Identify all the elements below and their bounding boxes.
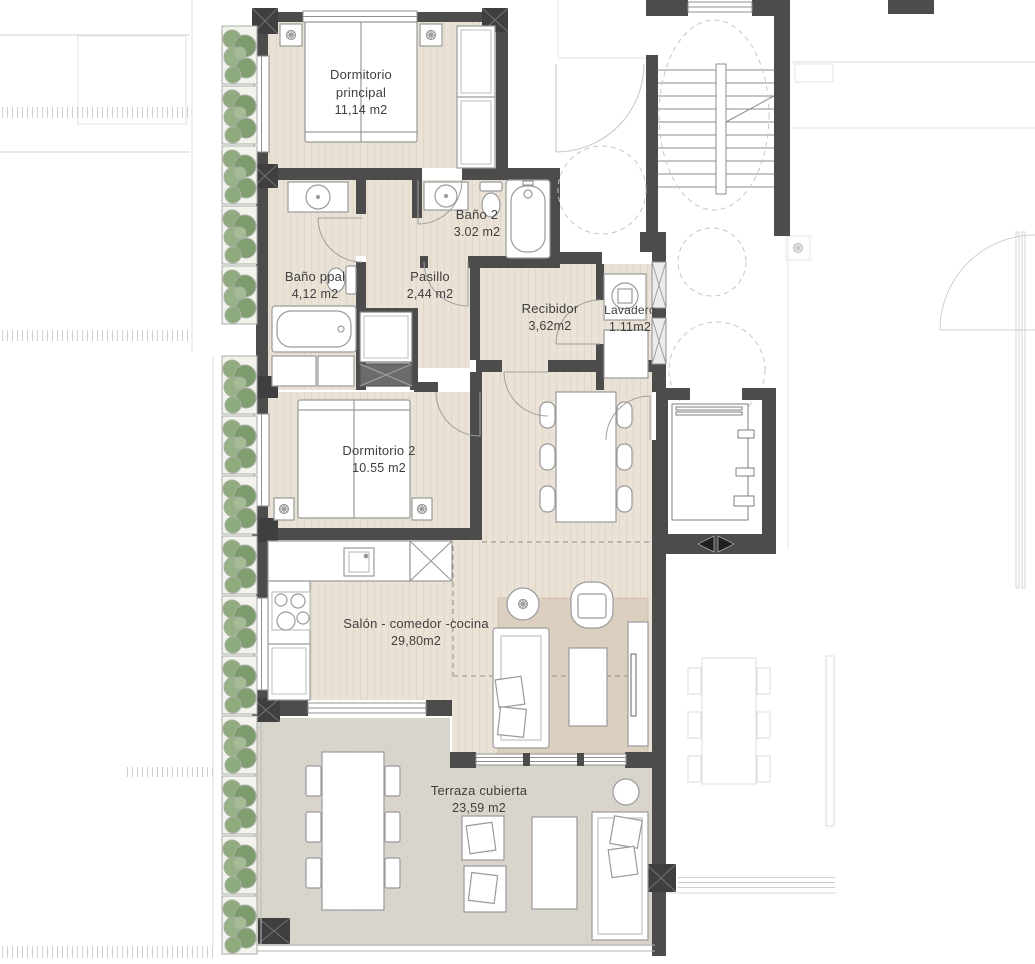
planter-box: [222, 776, 257, 834]
room-label-recibidor: Recibidor 3,62m2: [522, 300, 579, 335]
terrace-chair: [385, 858, 400, 888]
floor-plan: Dormitorio principal 11,14 m2 Baño 2 3.0…: [0, 0, 1035, 964]
dining-table: [556, 392, 616, 522]
closet: [360, 312, 412, 362]
ac-unit: [360, 364, 412, 386]
room-area: 3.02 m2: [454, 224, 501, 241]
dining-chair: [540, 444, 555, 470]
dining-chair: [540, 486, 555, 512]
room-name: Lavadero: [604, 302, 656, 319]
planter-box: [222, 596, 257, 654]
planter-box: [222, 26, 257, 84]
room-name: Recibidor: [522, 300, 579, 318]
planter-box: [222, 416, 257, 474]
planter-box: [222, 146, 257, 204]
room-area: 4,12 m2: [285, 286, 345, 303]
kitchen-counter: [268, 541, 410, 581]
planter-box: [222, 536, 257, 594]
planters: [222, 26, 257, 954]
planter-box: [222, 656, 257, 714]
planter-box: [222, 896, 257, 954]
room-name: Pasillo: [407, 268, 454, 286]
room-area: 2,44 m2: [407, 286, 454, 303]
room-label-bano-2: Baño 2 3.02 m2: [454, 206, 501, 241]
sofa: [493, 628, 549, 748]
dining-chair: [617, 486, 632, 512]
window: [308, 703, 426, 713]
room-name: Terraza cubierta: [431, 782, 527, 800]
decor-flower-icon: [794, 244, 803, 253]
wardrobe: [457, 26, 495, 168]
neighbor-dining-table: [688, 658, 770, 784]
terrace-dining-table: [322, 752, 384, 910]
floor-plan-canvas: [0, 0, 1035, 964]
bathtub: [272, 306, 356, 352]
terrace-chair: [306, 858, 321, 888]
refrigerator: [410, 541, 452, 581]
room-area: 23,59 m2: [431, 800, 527, 817]
tv-sideboard: [628, 622, 648, 746]
room-area: 1.11m2: [604, 319, 656, 336]
room-label-terraza-cubierta: Terraza cubierta 23,59 m2: [431, 782, 527, 817]
room-label-dormitorio-principal: Dormitorio principal 11,14 m2: [315, 66, 407, 119]
planter-box: [222, 86, 257, 144]
planter-box: [222, 716, 257, 774]
window: [303, 11, 417, 22]
room-area: 29,80m2: [343, 633, 489, 650]
planter-box: [222, 266, 257, 324]
planter-box: [222, 356, 257, 414]
terrace-coffee-table: [532, 817, 577, 909]
room-area: 3,62m2: [522, 318, 579, 335]
room-label-lavadero: Lavadero 1.11m2: [604, 302, 656, 336]
cooktop: [272, 592, 310, 630]
room-area: 11,14 m2: [315, 102, 407, 119]
room-name: Baño 2: [454, 206, 501, 224]
terrace-armchair: [464, 866, 506, 912]
terrace-chair: [385, 812, 400, 842]
terrace-chair: [385, 766, 400, 796]
coffee-table: [569, 648, 607, 726]
dining-chair: [540, 402, 555, 428]
elevator: [656, 388, 776, 554]
planter-box: [222, 836, 257, 894]
terrace-chair: [306, 812, 321, 842]
staircase: [658, 64, 774, 194]
room-name: Dormitorio 2: [342, 442, 415, 460]
planter-box: [222, 206, 257, 264]
laundry-counter: [604, 330, 648, 378]
room-label-salon-comedor-cocina: Salón - comedor -cocina 29,80m2: [343, 615, 489, 650]
planter-box: [222, 476, 257, 534]
bath-mat: [272, 356, 354, 386]
bathtub: [506, 180, 550, 258]
room-label-dormitorio-2: Dormitorio 2 10.55 m2: [342, 442, 415, 477]
room-label-pasillo: Pasillo 2,44 m2: [407, 268, 454, 303]
kitchen-sink: [344, 548, 374, 576]
stairwell-window: [688, 2, 752, 12]
room-name: Salón - comedor -cocina: [343, 615, 489, 633]
terrace-side-table: [613, 779, 639, 805]
dining-chair: [617, 444, 632, 470]
armchair: [571, 582, 613, 628]
room-label-bano-ppal: Baño ppal 4,12 m2: [285, 268, 345, 303]
sink-vanity: [288, 182, 348, 212]
lounger: [592, 812, 648, 940]
terrace-chair: [306, 766, 321, 796]
room-name: Dormitorio principal: [315, 66, 407, 102]
room-name: Baño ppal: [285, 268, 345, 286]
dining-chair: [617, 402, 632, 428]
room-area: 10.55 m2: [342, 460, 415, 477]
sliding-door-glass: [476, 754, 626, 765]
terrace-armchair: [462, 816, 504, 860]
